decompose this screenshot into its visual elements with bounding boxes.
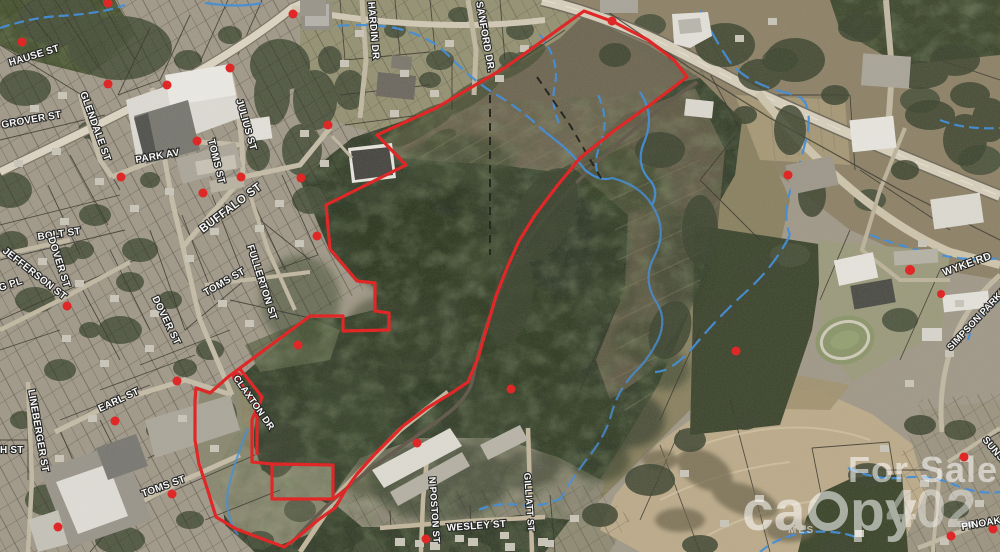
- svg-text:402: 402: [886, 479, 976, 539]
- svg-text:MLS: MLS: [788, 525, 815, 536]
